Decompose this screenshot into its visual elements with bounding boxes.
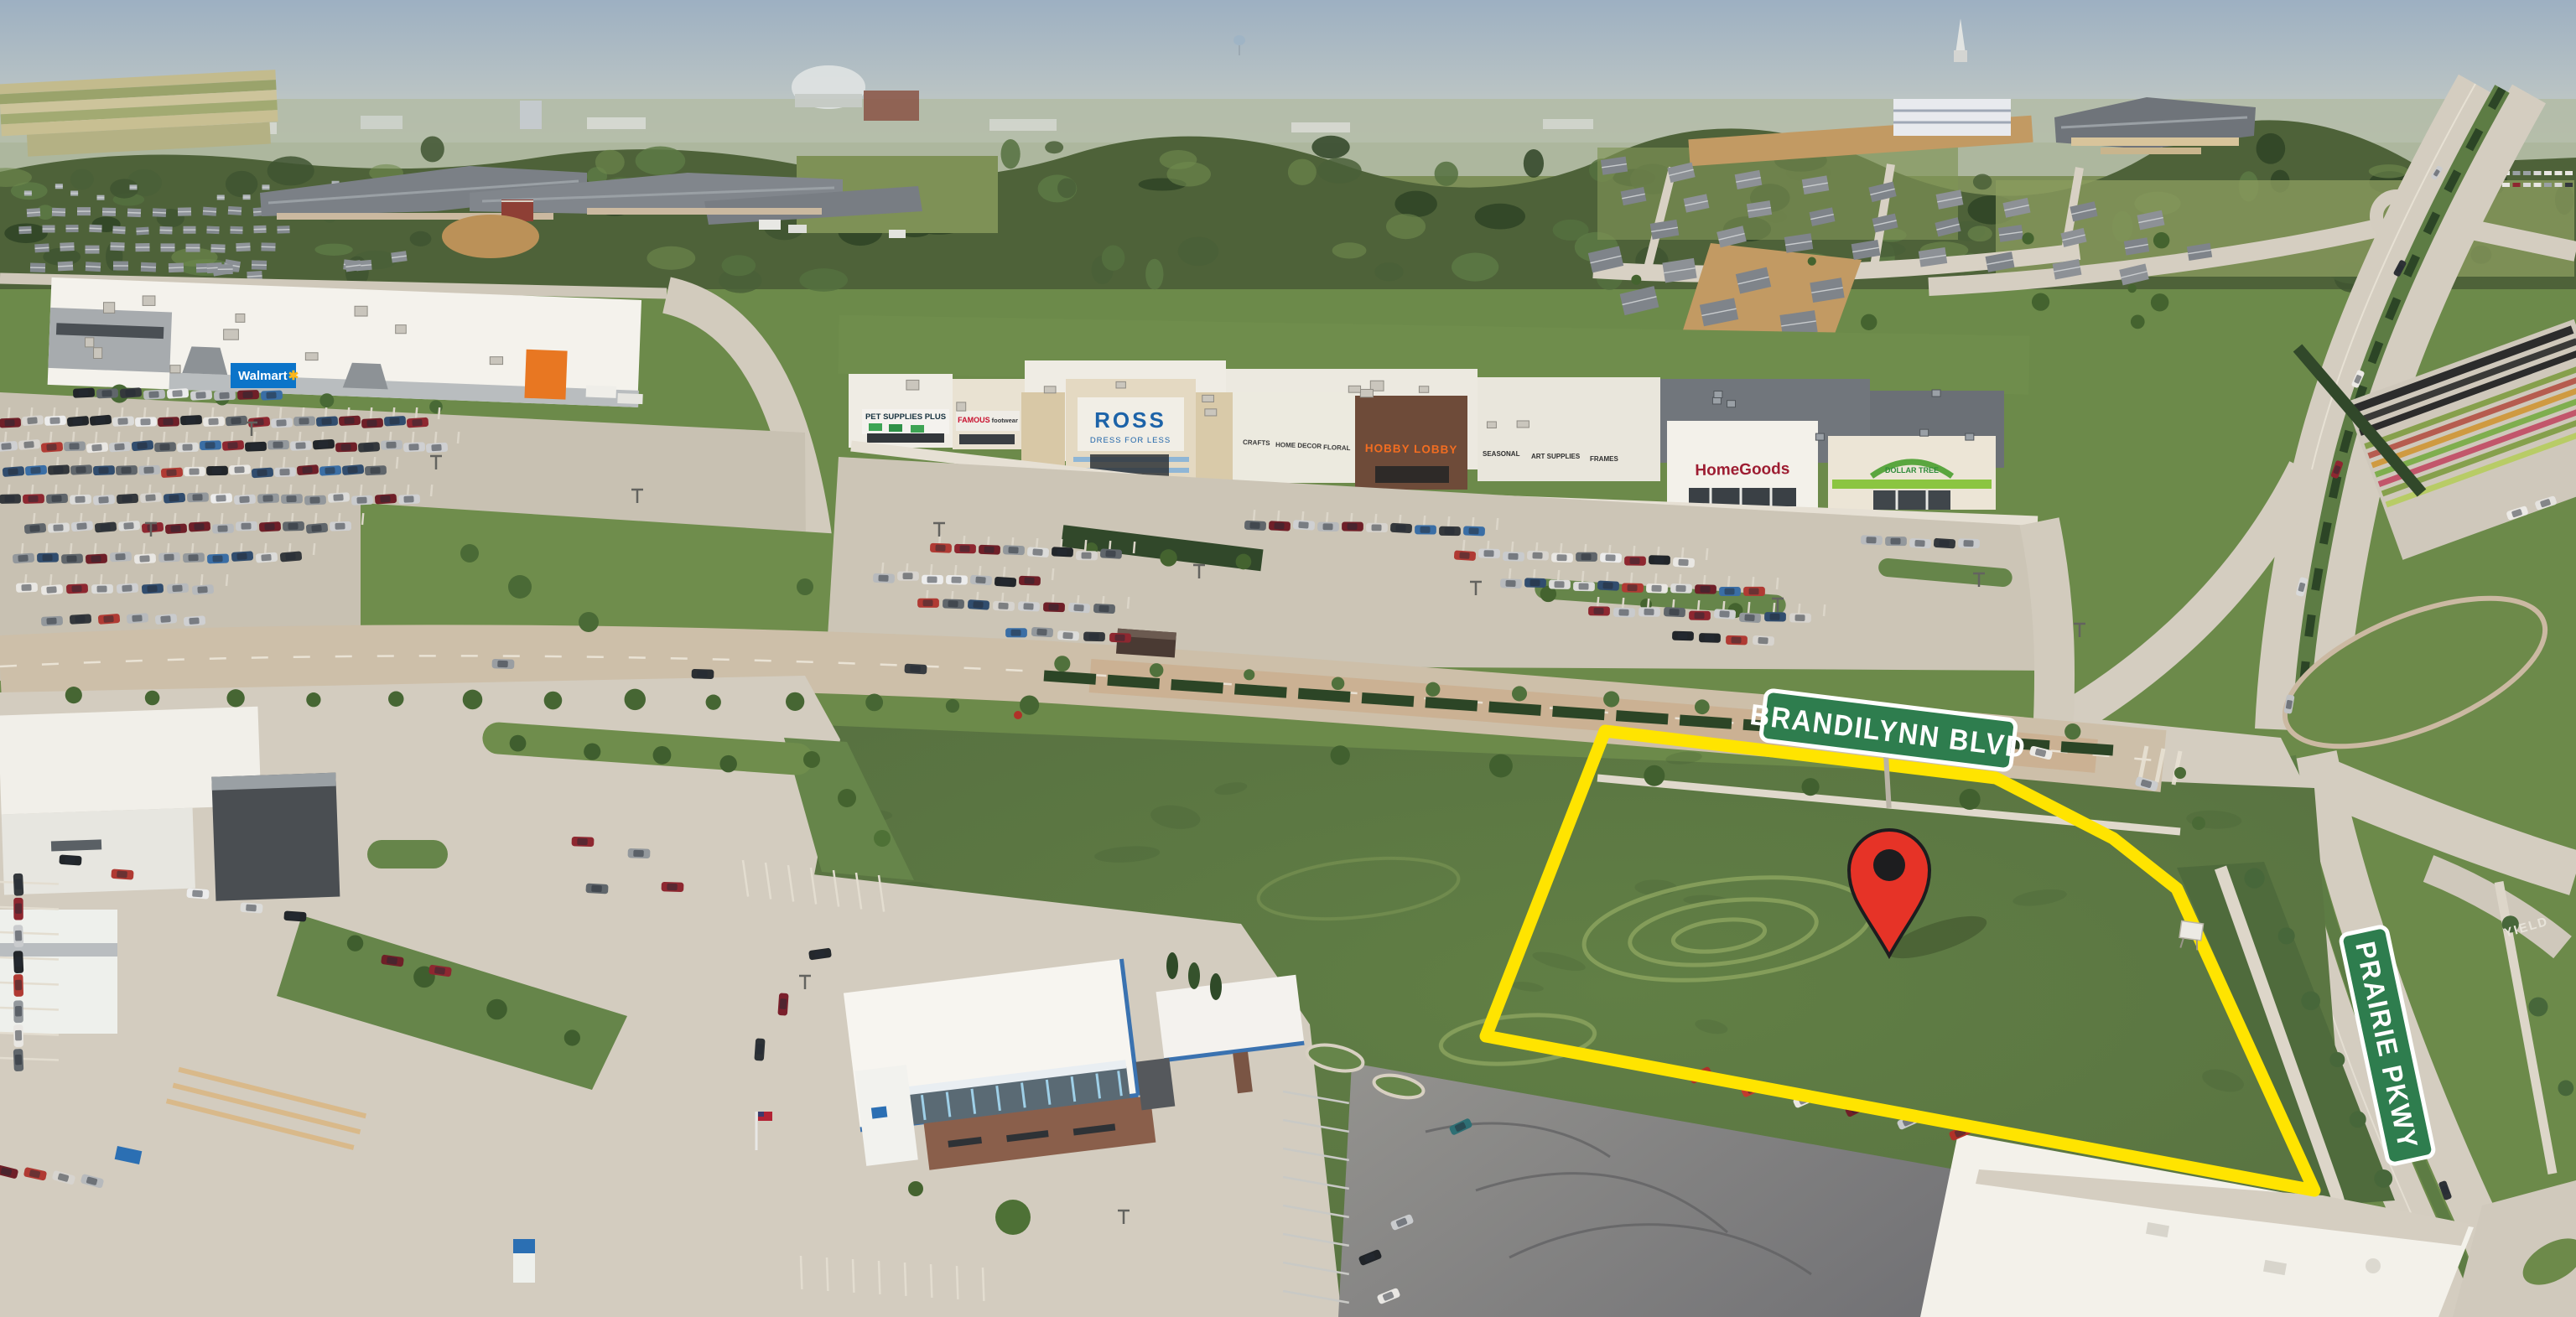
car [1100,548,1122,558]
car [210,493,232,504]
car-glass [959,546,969,552]
car [1600,552,1622,563]
car-glass [389,417,399,424]
car-glass [246,905,257,912]
car [1415,525,1436,534]
car-glass [923,599,933,606]
car-glass [299,417,309,424]
car [177,443,199,453]
car-glass [814,950,825,958]
roof-ridge [153,212,166,213]
car [1714,609,1736,620]
tree-canopy [647,246,695,270]
car-glass [217,526,227,532]
car [290,440,312,450]
car [167,388,189,399]
street-tree [1331,745,1350,765]
street-tree [2374,1169,2392,1188]
house [206,226,219,235]
car-glass [697,671,708,677]
walmart-logo: Walmart✱ [238,369,299,383]
street-tree [145,691,160,706]
house [236,242,250,251]
stall-line [34,513,34,525]
street-tree [2278,927,2295,944]
car [2565,183,2573,187]
tree-canopy [1524,149,1544,178]
stall-line [1631,573,1632,584]
house [18,226,31,235]
car-glass [387,957,397,965]
car-glass [497,661,508,667]
car-glass [370,467,380,474]
street-tree [388,692,403,707]
car [381,440,402,450]
car-glass [192,494,202,500]
car-glass [1770,614,1780,620]
car-glass [347,466,358,474]
house [141,262,156,272]
street-tree [584,743,600,760]
tree-canopy [1057,178,1076,198]
street-tree [706,695,721,710]
car [1670,583,1692,594]
tree-canopy [1435,162,1458,186]
car-glass [122,495,132,502]
car-glass [948,600,958,607]
house [55,184,63,189]
tree [2032,293,2049,311]
car [110,552,132,562]
car [917,599,939,608]
car [1524,578,1546,588]
stall-line [50,574,51,586]
tree [797,578,813,595]
car-glass [46,618,56,625]
house [160,243,174,251]
house [218,264,233,274]
car-glass [951,577,961,583]
car [70,495,91,505]
car-glass [159,443,169,450]
car-glass [72,417,83,425]
car [70,614,91,625]
car-glass [289,913,300,920]
hvac-unit [1712,397,1721,404]
car [1789,613,1811,623]
street-tree [510,735,527,752]
wall [1196,392,1233,480]
car-glass [1444,528,1454,535]
car [1503,552,1524,562]
car-glass [1651,585,1661,592]
tree-canopy [2257,133,2286,164]
house [217,194,225,200]
stall-line [1278,511,1279,522]
car [1613,608,1635,618]
car-glass [1032,548,1042,556]
street-tree [2064,723,2080,739]
famous-footwear-sign: FAMOUSfootwear [958,416,1018,424]
car [306,523,329,534]
car [342,464,365,475]
stall-line [12,457,13,469]
car [158,552,180,563]
stall-line [431,485,432,496]
street-tree [786,692,804,711]
car [897,572,919,581]
car [572,837,595,847]
car [25,465,47,476]
tree-canopy [1968,226,1992,241]
car [1269,521,1291,531]
car [187,492,209,502]
car-glass [15,931,23,941]
car [283,521,304,531]
car-glass [216,495,226,501]
car [954,544,976,553]
car [1390,523,1412,533]
car [183,552,205,563]
car-glass [1618,609,1628,616]
car-glass [66,555,76,562]
car-glass [1554,581,1564,588]
car [1719,587,1741,596]
car [2513,171,2521,175]
street-tree [2350,1111,2366,1128]
ross-tagline: DRESS FOR LESS [1090,436,1171,445]
car-glass [1011,630,1021,636]
house [65,225,78,232]
house [169,262,184,272]
car [66,583,88,594]
car-glass [276,419,286,426]
car-glass [1249,522,1259,529]
car [1673,557,1695,568]
roof-ridge [236,246,251,247]
house [97,195,105,200]
hvac-unit [1815,433,1824,440]
roof-ridge [111,246,125,247]
car [492,659,515,669]
car [142,583,164,594]
car [970,575,992,586]
hvac-unit [305,353,318,360]
car-glass [15,957,22,967]
stall-line [315,513,316,525]
stall-line [1463,540,1464,552]
street-tree [719,755,737,773]
stall-line [118,432,119,443]
stall-line [983,1268,984,1301]
house [243,194,251,200]
stall-line [96,432,96,443]
tree [2127,284,2136,293]
hvac-unit [1202,395,1214,402]
car [930,543,952,553]
car-glass [380,495,390,502]
pet-supplies-plus-store: PET SUPPLIES PLUS [862,409,949,443]
street-tree [1512,686,1527,701]
car-glass [75,466,86,473]
stall-line [314,543,314,555]
car [426,443,448,454]
roof-ridge [52,212,65,213]
car [16,583,38,593]
street-tree [226,689,244,707]
house [230,226,242,234]
car [180,415,202,425]
stall-line [1254,510,1254,521]
car [2502,183,2510,187]
street-tree [564,1029,580,1045]
street-tree [2244,868,2264,889]
house [77,207,91,215]
car [1597,580,1619,590]
tree-canopy [1145,259,1163,290]
car-glass [148,391,158,398]
car [1861,535,1883,545]
stall-line [226,574,227,586]
hvac-unit [1966,433,1974,440]
car-glass [288,523,298,530]
roof-ridge [127,213,141,214]
car [61,554,83,564]
car-glass [927,576,937,583]
car [1573,582,1595,592]
stall-line [416,407,417,419]
hvac-unit [1487,422,1496,428]
car [297,464,319,475]
house [42,226,55,233]
car [73,388,95,398]
car [1649,555,1670,565]
tree [2174,767,2186,779]
hvac-unit [224,329,239,340]
aerial-photo: Walmart✱ PET SUPPLIES PLUS FAMOUSfootwea… [0,0,2576,1317]
hvac-unit [957,402,966,411]
dome-building [792,65,865,109]
car [37,552,59,563]
car-glass [1939,540,1949,547]
roof-ridge [211,248,226,249]
car-glass [51,495,61,502]
roof-ridge [207,230,220,231]
car-glass [1594,608,1604,614]
wall-sign: ART SUPPLIES [1531,453,1581,460]
house [261,242,275,251]
car [234,495,256,505]
car-glass [1505,580,1515,587]
car-glass [1578,583,1588,590]
tree [1631,275,1641,285]
car-glass [1348,523,1358,530]
car [0,417,21,428]
car [2513,183,2521,187]
car [1043,602,1065,612]
car-glass [28,495,38,502]
hvac-unit [1360,389,1373,397]
car [585,884,608,894]
house [159,226,172,235]
stall-line [164,432,164,443]
stall-line [1582,571,1583,583]
hvac-unit [94,348,102,359]
stall-line [170,457,171,469]
car [46,494,68,504]
car-glass [236,552,247,560]
street-tree [486,999,507,1020]
car-glass [205,442,215,449]
car-glass [30,467,40,474]
stall-line [221,513,222,525]
car-glass [1062,632,1072,639]
tree-canopy [1166,162,1210,187]
car-glass [96,586,106,593]
stall-line [57,513,58,525]
car [1576,552,1597,562]
car-glass [1744,614,1754,621]
car-glass [1669,609,1679,615]
house [136,227,148,236]
tree-canopy [314,244,352,256]
car [267,440,289,450]
car-glass [250,443,260,450]
car [237,390,259,400]
stall-line [345,432,345,443]
stall-line [243,485,244,496]
car-glass [340,443,351,450]
car-glass [998,603,1008,609]
car [95,521,117,532]
stall-line [143,543,144,555]
car [2523,183,2531,187]
car-glass [166,469,176,476]
tree [1861,314,1877,330]
car-glass [1114,635,1124,641]
car-glass [1627,584,1637,591]
roof-ridge [35,247,49,248]
car [117,494,138,504]
hvac-unit [1727,401,1736,407]
car-glass [975,577,985,583]
car [189,521,210,531]
car [1885,537,1907,546]
house [228,206,242,215]
house [153,208,166,217]
house [85,246,99,254]
car [245,442,267,452]
car-glass [15,1030,22,1041]
street-tree [1644,765,1665,786]
car-glass [1483,550,1493,557]
stall-line [879,1261,880,1294]
car-glass [279,469,289,475]
car-glass [91,444,102,452]
car [1753,635,1774,646]
house [102,208,116,216]
car-glass [197,586,207,594]
stall-line [361,485,361,496]
car [1672,631,1694,641]
car-glass [1459,552,1469,558]
hvac-unit [103,303,114,314]
hvac-unit [1419,386,1428,393]
stall-line [1633,546,1634,557]
stall-line [257,407,258,419]
car-glass [169,495,179,502]
car-glass [266,391,276,398]
stall-line [5,432,6,443]
dollar-tree-store: DOLLAR TREE [1828,436,1996,510]
car [13,898,23,920]
car-glass [53,466,63,473]
car [351,495,373,506]
car-glass [140,418,150,425]
tree-canopy [636,147,686,175]
roof-ridge [113,230,126,231]
car [24,523,47,534]
roof-ridge [86,267,101,267]
tree-canopy [1317,158,1362,184]
stall-line [1052,568,1053,580]
tree-canopy [1288,159,1317,185]
house [27,208,41,217]
stall-line [193,457,194,469]
car-glass [71,585,81,592]
street-tree [306,692,320,707]
car-glass [1644,609,1654,615]
dollar-tree-sign: DOLLAR TREE [1885,466,1939,474]
house [345,260,361,272]
house [262,184,269,189]
hobby-lobby-store: HOBBY LOBBY [1355,396,1467,490]
car-glass [591,885,602,893]
street-tree [1244,669,1254,680]
tree-canopy [1332,242,1367,258]
house [86,262,101,272]
street-tree [1332,677,1344,690]
street-tree [625,689,646,710]
car [904,664,927,675]
tree [460,544,479,563]
car [23,494,44,504]
car [13,553,34,564]
car-glass [1602,582,1613,589]
street-tree [2329,1052,2345,1067]
stall-line [397,457,397,469]
car-glass [78,390,88,397]
car-glass [261,554,272,562]
tree-canopy [1386,214,1426,239]
roof-ridge [90,228,102,229]
car-glass [172,585,182,592]
car [1366,523,1388,532]
car [41,584,63,595]
car [361,418,383,428]
car [922,575,943,584]
car-glass [1,443,12,450]
street-tree [946,699,959,713]
car [13,974,23,997]
hvac-unit [1116,381,1125,388]
stall-line [283,457,284,469]
car [1689,611,1711,620]
wall-sign: FRAMES [1590,455,1618,463]
car [1764,612,1786,621]
house [70,191,78,196]
tree-canopy [1178,236,1218,266]
